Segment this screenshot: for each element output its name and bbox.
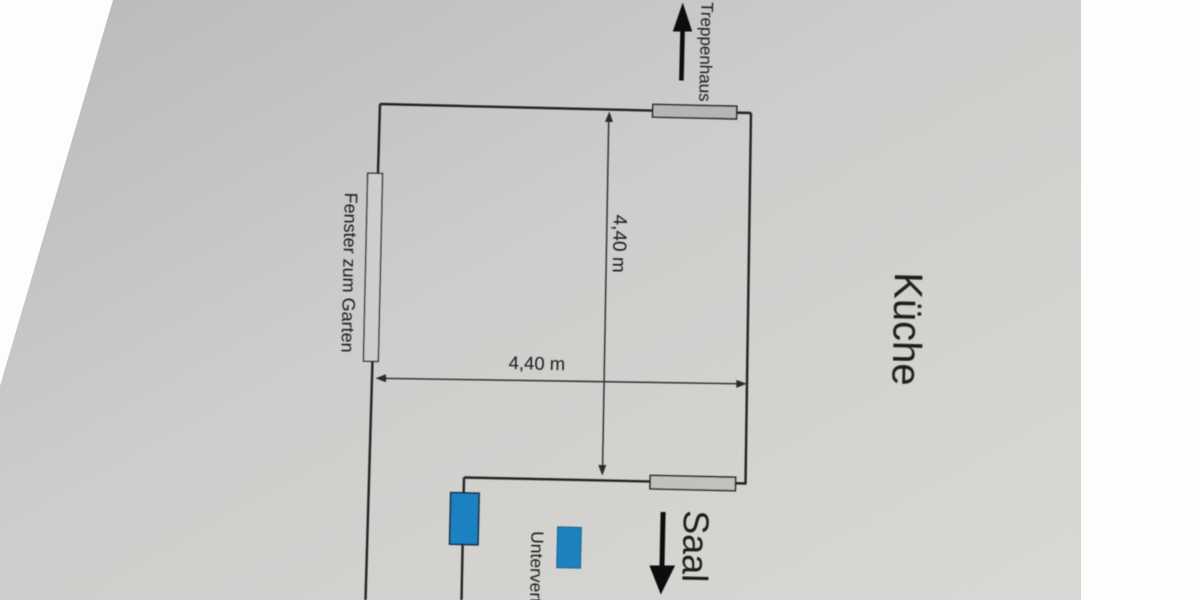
svg-text:Fenster zum Garten: Fenster zum Garten <box>337 192 361 352</box>
svg-text:Treppenhaus: Treppenhaus <box>695 2 716 102</box>
svg-text:Küche: Küche <box>883 272 930 386</box>
svg-text:Unterverteilung: Unterverteilung <box>525 531 548 600</box>
svg-text:4,40 m: 4,40 m <box>508 352 565 374</box>
svg-text:Saal: Saal <box>674 510 717 583</box>
svg-text:4,40 m: 4,40 m <box>608 214 630 273</box>
